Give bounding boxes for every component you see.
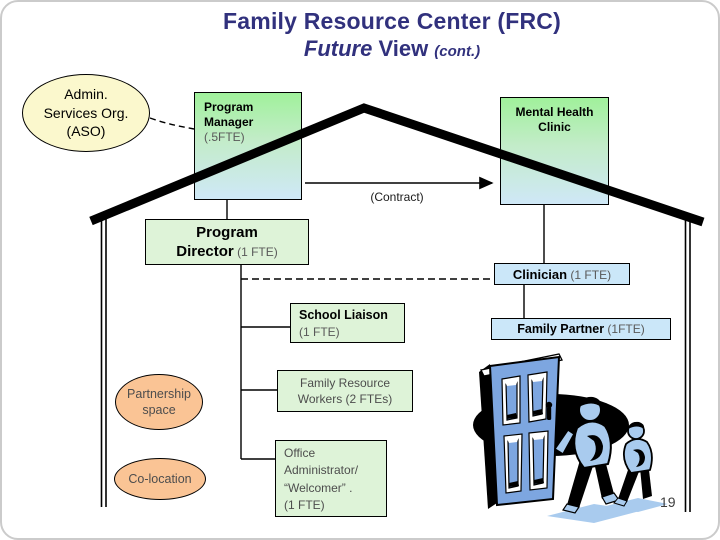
node-mental-health-clinic: Mental Health Clinic	[500, 97, 609, 205]
slide-title: Family Resource Center (FRC) Future View…	[112, 8, 672, 62]
door-panel	[502, 376, 520, 425]
clinician-fte: (1 FTE)	[567, 268, 611, 282]
clinician-text: Clinician (1 FTE)	[513, 267, 611, 282]
node-co-location: Co-location	[114, 458, 206, 500]
dashed-link-aso-pm	[150, 118, 194, 129]
node-school-liaison: School Liaison (1 FTE)	[290, 303, 405, 343]
school-liaison-title: School Liaison	[299, 307, 396, 324]
program-manager-fte: (.5FTE)	[204, 130, 292, 145]
family-partner-text: Family Partner (1FTE)	[517, 322, 645, 336]
co-location-label: Co-location	[128, 472, 191, 486]
title-view: View	[372, 36, 434, 61]
node-program-manager: Program Manager (.5FTE)	[194, 92, 302, 200]
node-clinician: Clinician (1 FTE)	[494, 263, 630, 285]
family-partner-title: Family Partner	[517, 322, 604, 336]
node-program-director: Program Director (1 FTE)	[145, 219, 309, 265]
door-face	[490, 357, 559, 505]
mhc-title: Mental Health Clinic	[505, 105, 604, 135]
clinician-title: Clinician	[513, 267, 567, 282]
node-admin-services-org: Admin. Services Org. (ASO)	[22, 74, 150, 152]
door-panel	[504, 434, 522, 493]
figure2-torso	[624, 439, 652, 473]
door-panel	[528, 372, 547, 422]
aso-line3: (ASO)	[67, 122, 106, 141]
pd-line1: Program	[196, 223, 258, 243]
node-family-partner: Family Partner (1FTE)	[491, 318, 671, 340]
partnership-line2: space	[142, 402, 175, 418]
node-office-administrator: Office Administrator/ “Welcomer” . (1 FT…	[275, 440, 387, 517]
aso-line1: Admin.	[64, 85, 108, 104]
oa-line1: Office	[284, 445, 378, 462]
school-liaison-fte: (1 FTE)	[299, 324, 396, 340]
figure2-back-leg	[640, 468, 652, 499]
pd-line2-bold: Director	[176, 243, 234, 260]
oa-line3: “Welcomer” .	[284, 480, 378, 497]
page-number: 19	[660, 494, 690, 510]
oa-line4: (1 FTE)	[284, 497, 378, 514]
oa-line2: Administrator/	[284, 462, 378, 479]
node-family-resource-workers: Family Resource Workers (2 FTEs)	[277, 370, 413, 412]
partnership-line1: Partnership	[127, 386, 191, 402]
title-line2: Future View (cont.)	[112, 36, 672, 62]
frw-line1: Family Resource	[300, 375, 390, 391]
title-cont: (cont.)	[434, 43, 480, 60]
aso-line2: Services Org.	[44, 104, 129, 123]
node-partnership-space: Partnership space	[115, 374, 203, 430]
slide: Family Resource Center (FRC) Future View…	[0, 0, 720, 540]
frw-line2: Workers (2 FTEs)	[298, 391, 392, 407]
pd-fte: (1 FTE)	[234, 245, 278, 259]
title-future: Future	[304, 36, 372, 61]
family-partner-fte: (1FTE)	[604, 322, 645, 336]
door-panel	[529, 431, 548, 490]
title-line1: Family Resource Center (FRC)	[112, 8, 672, 35]
contract-label: (Contract)	[332, 190, 462, 204]
program-manager-title: Program Manager	[204, 100, 292, 130]
figure1-torso	[574, 421, 611, 468]
pd-line2: Director (1 FTE)	[176, 242, 278, 262]
